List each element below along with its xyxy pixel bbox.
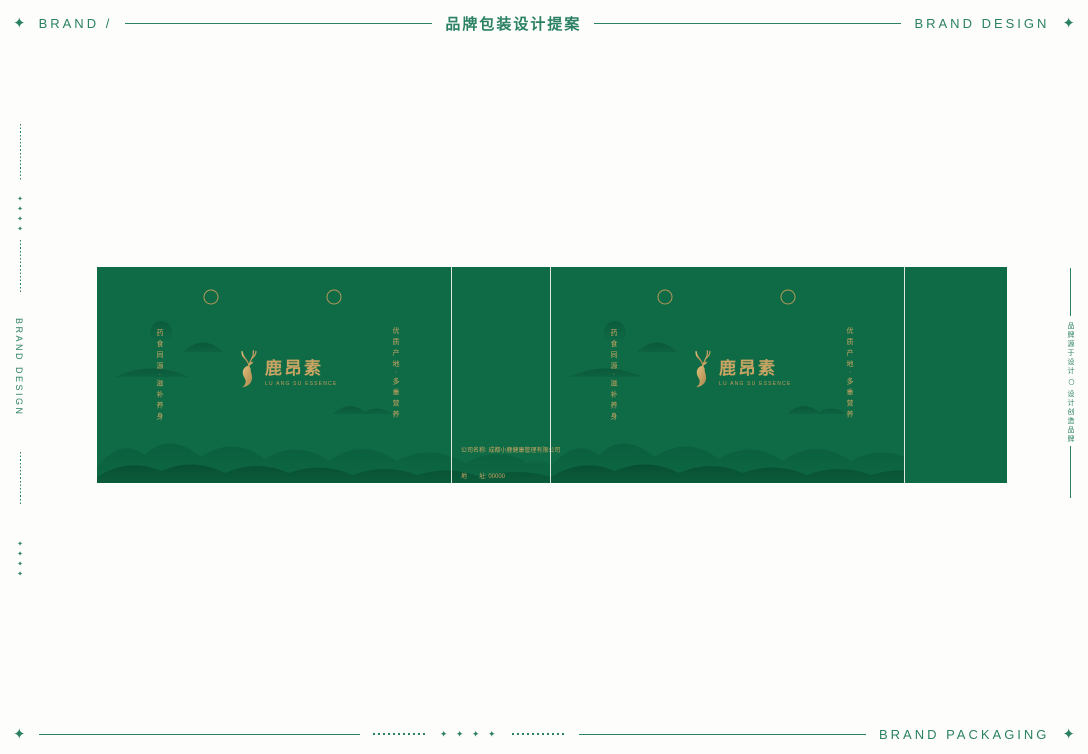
- vertical-line-icon: [1070, 446, 1071, 498]
- circle-separator-icon: 〇: [1066, 379, 1075, 387]
- header-left-label: BRAND /: [39, 16, 113, 31]
- header-rule: ✦ BRAND / 品牌包装设计提案 BRAND DESIGN ✦: [13, 10, 1075, 36]
- packaging-dieline: 药食同源·滋补养身 优质产地·多重营养 鹿昂素 LU ANG SU ESSENC…: [97, 267, 1007, 483]
- fold-line-icon: [904, 267, 905, 483]
- diamond-cluster-icon: ✦✦✦✦: [15, 540, 23, 580]
- package-slogan-right: 优质产地·多重营养: [844, 327, 854, 421]
- brand-name-en: LU ANG SU ESSENCE: [719, 381, 791, 387]
- brand-name-en: LU ANG SU ESSENCE: [265, 381, 337, 387]
- diamond-icon: ✦: [1062, 727, 1075, 742]
- header-title: 品牌包装设计提案: [445, 13, 581, 34]
- brand-name-cn: 鹿昂素: [265, 354, 337, 379]
- company-name-line: 公司名称: 成都小鹿健康管理有限公司: [461, 447, 560, 456]
- presentation-canvas: ✦ BRAND / 品牌包装设计提案 BRAND DESIGN ✦ ✦✦✦✦ B…: [0, 0, 1088, 754]
- dotted-line-icon: [373, 733, 427, 735]
- dotted-line-icon: [20, 124, 21, 181]
- right-ornament-column: 品牌源于设计〇设计创造品牌: [1062, 0, 1078, 754]
- fold-line-icon: [451, 267, 452, 483]
- dotted-line-icon: [20, 240, 21, 293]
- footer-line-right: [579, 734, 866, 735]
- right-vertical-slogan: 品牌源于设计〇设计创造品牌: [1065, 322, 1075, 444]
- dotted-line-icon: [20, 452, 21, 505]
- brand-logo: 鹿昂素 LU ANG SU ESSENCE: [236, 348, 337, 388]
- header-right-label: BRAND DESIGN: [914, 16, 1049, 31]
- diamond-cluster-icon: ✦ ✦ ✦ ✦: [440, 729, 499, 740]
- dotted-line-icon: [512, 733, 566, 735]
- package-slogan-right: 优质产地·多重营养: [390, 327, 400, 421]
- footer-right-label: BRAND PACKAGING: [879, 727, 1049, 742]
- footer-line-left: [39, 734, 360, 735]
- front-panel: 药食同源·滋补养身 优质产地·多重营养 鹿昂素 LU ANG SU ESSENC…: [551, 267, 1005, 483]
- brand-logo: 鹿昂素 LU ANG SU ESSENCE: [690, 348, 791, 388]
- left-ornament-column: ✦✦✦✦ BRAND DESIGN ✦✦✦✦: [14, 0, 28, 754]
- diamond-cluster-icon: ✦✦✦✦: [15, 195, 23, 235]
- deer-icon: [690, 348, 716, 388]
- company-info-block: 公司名称: 成都小鹿健康管理有限公司 地 址: 00000 联系电话: 0000…: [461, 430, 560, 483]
- package-slogan-left: 药食同源·滋补养身: [154, 329, 164, 423]
- fold-line-icon: [550, 267, 551, 483]
- slogan-bottom: 设计创造品牌: [1067, 390, 1074, 444]
- brand-name-cn: 鹿昂素: [719, 354, 791, 379]
- company-address-line: 地 址: 00000: [461, 473, 560, 482]
- deer-icon: [236, 348, 262, 388]
- package-slogan-left: 药食同源·滋补养身: [608, 329, 618, 423]
- left-vertical-label: BRAND DESIGN: [14, 318, 24, 417]
- header-line-right: [594, 23, 901, 24]
- footer-rule: ✦ ✦ ✦ ✦ ✦ BRAND PACKAGING ✦: [13, 724, 1075, 744]
- slogan-top: 品牌源于设计: [1067, 322, 1074, 376]
- header-line-left: [125, 23, 432, 24]
- diamond-icon: ✦: [13, 727, 26, 742]
- vertical-line-icon: [1070, 268, 1071, 316]
